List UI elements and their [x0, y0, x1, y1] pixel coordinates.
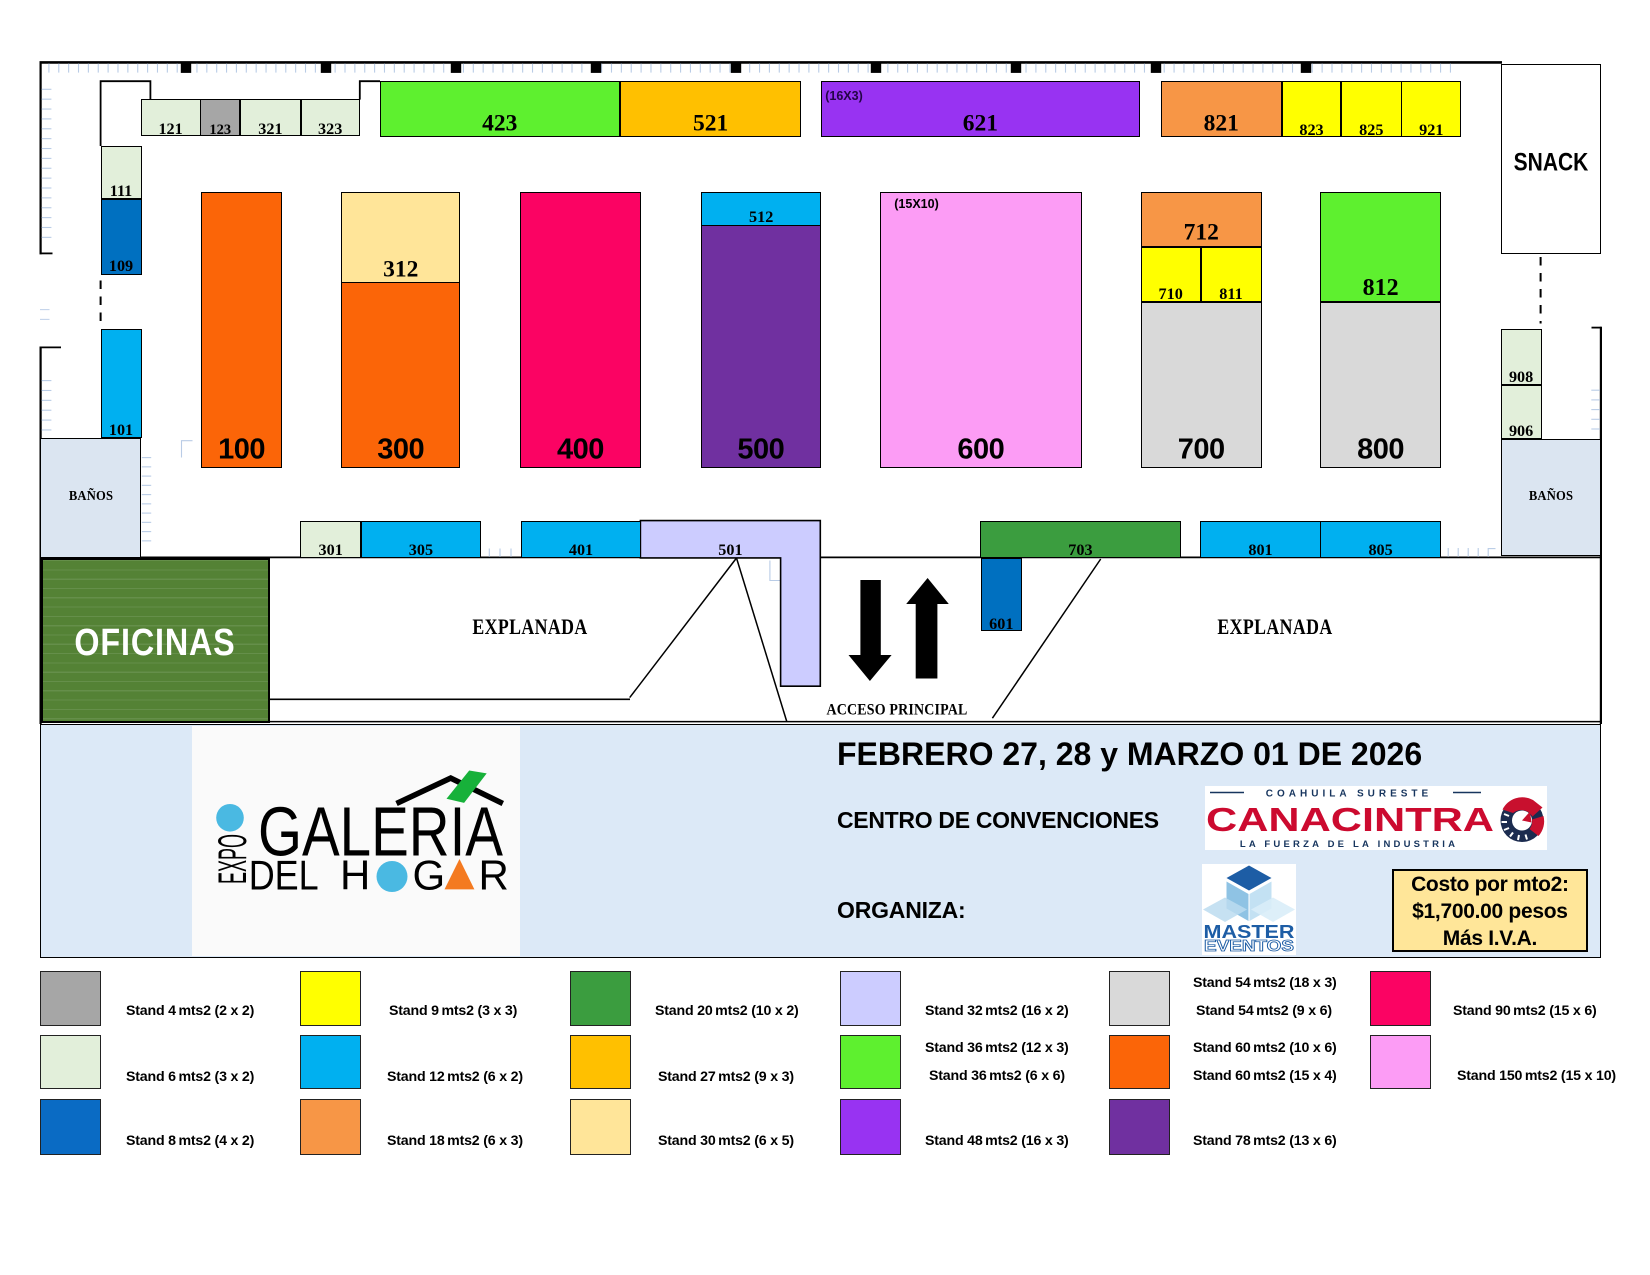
svg-text:G: G	[413, 851, 446, 898]
svg-text:LA FUERZA DE LA INDUSTRIA: LA FUERZA DE LA INDUSTRIA	[1239, 839, 1457, 850]
svg-text:H: H	[340, 851, 370, 898]
svg-text:R: R	[479, 851, 509, 898]
svg-text:DEL: DEL	[249, 851, 319, 898]
svg-text:CANACINTRA: CANACINTRA	[1206, 801, 1494, 838]
svg-text:COAHUILA SURESTE: COAHUILA SURESTE	[1265, 788, 1431, 799]
svg-text:EVENTOS: EVENTOS	[1204, 938, 1294, 955]
